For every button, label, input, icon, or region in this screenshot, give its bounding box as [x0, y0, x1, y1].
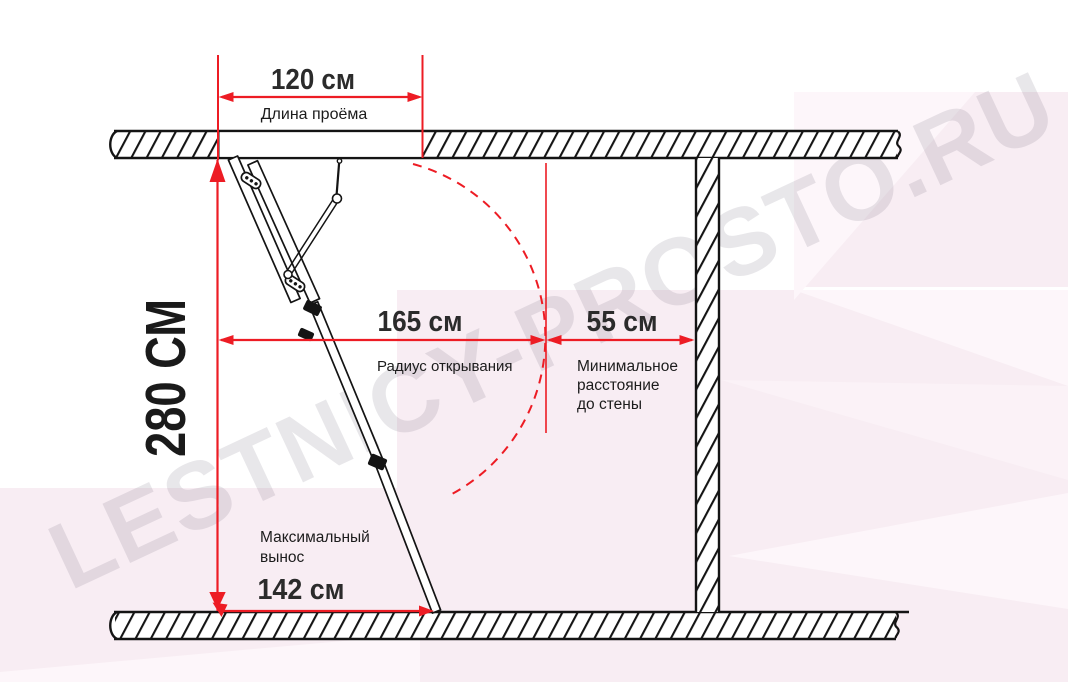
svg-text:до стены: до стены [577, 396, 642, 413]
svg-text:120 см: 120 см [271, 64, 355, 96]
svg-text:165 см: 165 см [378, 306, 463, 338]
svg-text:Длина проёма: Длина проёма [261, 106, 368, 123]
svg-text:Радиус открывания: Радиус открывания [377, 358, 512, 375]
svg-text:вынос: вынос [260, 549, 305, 566]
svg-text:280 СМ: 280 СМ [134, 299, 198, 457]
svg-text:расстояние: расстояние [577, 377, 660, 394]
svg-text:142 см: 142 см [258, 574, 345, 606]
svg-text:55 см: 55 см [587, 306, 658, 338]
svg-text:Максимальный: Максимальный [260, 529, 370, 546]
svg-text:Минимальное: Минимальное [577, 358, 678, 375]
